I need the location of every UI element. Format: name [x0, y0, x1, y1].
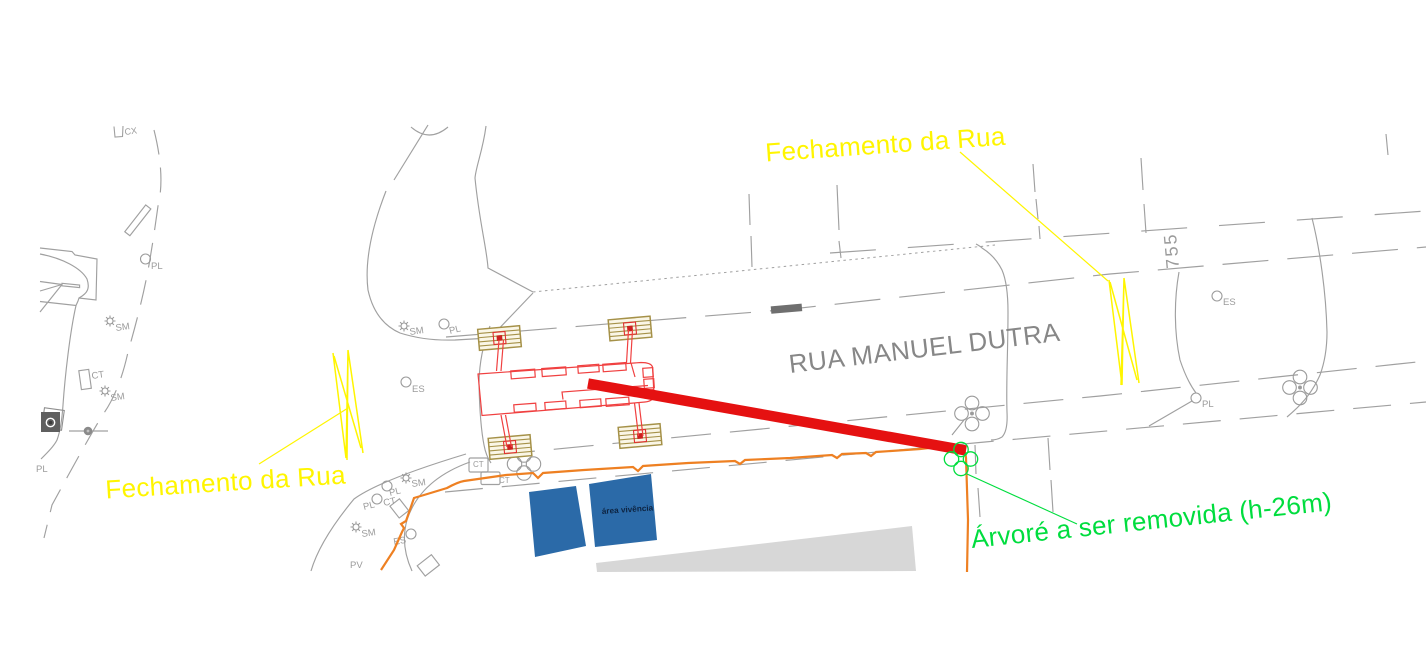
- svg-text:755: 755: [1160, 232, 1183, 270]
- svg-text:ES: ES: [412, 384, 425, 395]
- svg-text:PL: PL: [1202, 399, 1214, 410]
- svg-text:PL: PL: [36, 464, 48, 475]
- svg-text:SM: SM: [361, 527, 377, 540]
- svg-text:SM: SM: [411, 477, 427, 490]
- svg-text:ES: ES: [1223, 297, 1236, 308]
- svg-text:PL: PL: [151, 261, 163, 272]
- svg-text:SM: SM: [409, 325, 425, 338]
- svg-text:CT: CT: [499, 476, 510, 485]
- svg-text:CT: CT: [91, 369, 105, 382]
- svg-text:SM: SM: [115, 321, 131, 334]
- svg-text:SM: SM: [110, 391, 126, 404]
- svg-text:PV: PV: [350, 560, 363, 571]
- svg-text:CX: CX: [124, 125, 138, 137]
- svg-text:CT: CT: [473, 460, 484, 469]
